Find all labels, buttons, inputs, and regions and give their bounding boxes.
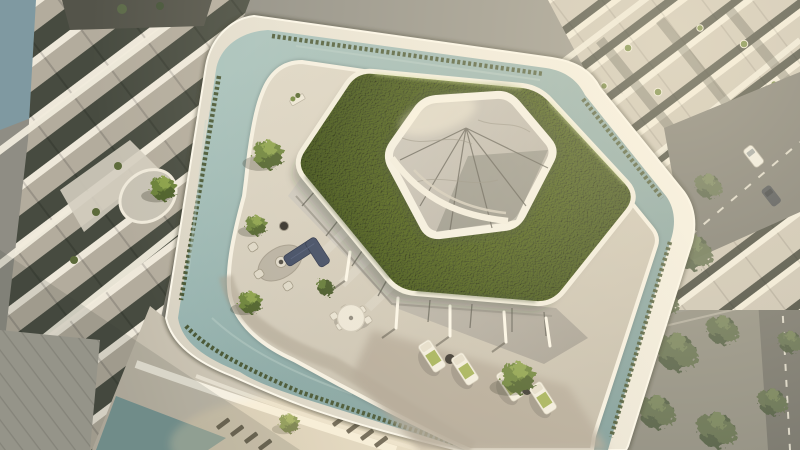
rooftop-render [0, 0, 800, 450]
render-viewport [0, 0, 800, 450]
